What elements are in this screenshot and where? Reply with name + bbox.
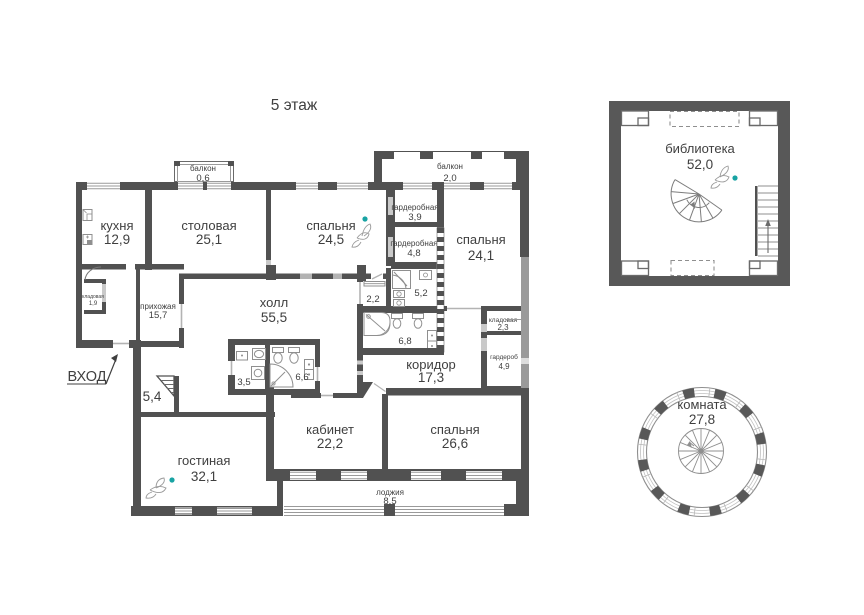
svg-text:гардеробная: гардеробная [390,239,437,248]
svg-text:32,1: 32,1 [191,469,217,484]
svg-text:0,6: 0,6 [196,173,209,184]
svg-text:5,4: 5,4 [143,389,162,404]
svg-text:5,2: 5,2 [414,288,427,299]
svg-text:балкон: балкон [437,162,463,171]
svg-text:ВХОД: ВХОД [67,369,106,385]
svg-text:52,0: 52,0 [687,157,713,172]
svg-text:22,2: 22,2 [317,436,343,451]
svg-text:2,3: 2,3 [497,323,509,332]
svg-text:8,5: 8,5 [383,496,396,507]
svg-text:27,8: 27,8 [689,412,715,427]
svg-text:библиотека: библиотека [665,141,735,156]
svg-text:спальня: спальня [306,218,355,233]
svg-text:3,5: 3,5 [237,377,250,388]
svg-text:холл: холл [260,295,288,310]
svg-text:5 этаж: 5 этаж [271,97,318,114]
svg-text:кабинет: кабинет [306,422,354,437]
svg-text:спальня: спальня [456,232,505,247]
svg-text:гардеробная: гардеробная [391,203,438,212]
svg-text:25,1: 25,1 [196,232,222,247]
svg-text:12,9: 12,9 [104,232,130,247]
svg-text:кладовая: кладовая [82,294,104,300]
svg-text:6,8: 6,8 [398,336,411,347]
svg-text:гардероб: гардероб [490,353,518,361]
svg-text:17,3: 17,3 [418,370,444,385]
svg-text:6,6: 6,6 [295,372,308,383]
svg-text:26,6: 26,6 [442,436,468,451]
svg-text:комната: комната [677,397,727,412]
svg-text:15,7: 15,7 [149,310,168,321]
svg-text:3,9: 3,9 [408,212,421,223]
svg-text:24,5: 24,5 [318,232,344,247]
svg-text:2,2: 2,2 [366,294,379,305]
svg-text:1,9: 1,9 [89,301,98,307]
svg-text:гостиная: гостиная [178,453,231,468]
svg-text:кухня: кухня [100,218,133,233]
svg-text:24,1: 24,1 [468,248,494,263]
svg-text:4,9: 4,9 [498,362,510,371]
svg-text:спальня: спальня [430,422,479,437]
svg-text:столовая: столовая [181,218,236,233]
svg-text:4,8: 4,8 [407,248,420,259]
svg-text:балкон: балкон [190,164,216,173]
svg-text:55,5: 55,5 [261,310,287,325]
